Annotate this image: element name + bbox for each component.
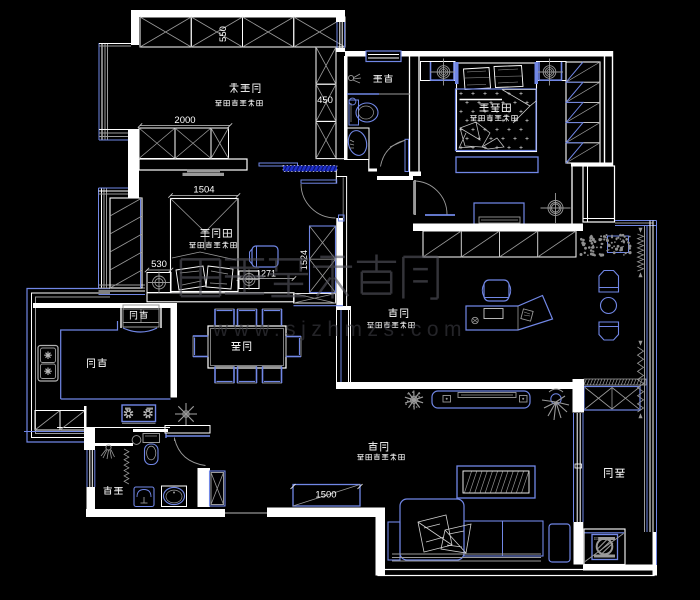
svg-text:450: 450	[317, 95, 333, 106]
svg-text:1500: 1500	[315, 490, 336, 501]
svg-text:530: 530	[151, 259, 167, 270]
svg-text:550: 550	[218, 26, 229, 42]
svg-text:1504: 1504	[193, 185, 214, 196]
svg-text:2000: 2000	[174, 115, 195, 126]
svg-text:www.sjzhmzs.com: www.sjzhmzs.com	[212, 318, 467, 341]
